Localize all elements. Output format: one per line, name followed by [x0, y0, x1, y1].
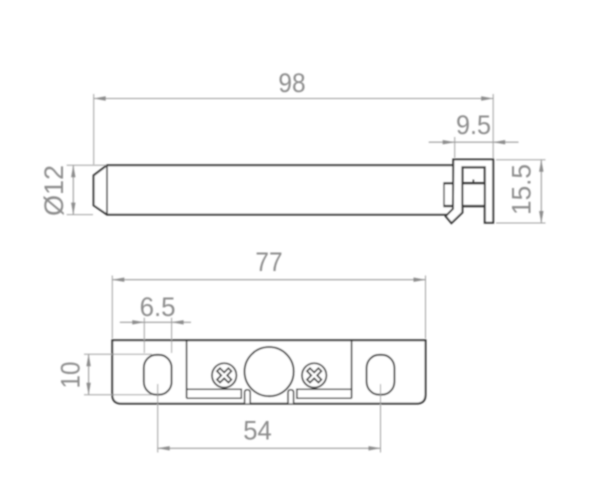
svg-text:54: 54	[243, 415, 272, 445]
svg-text:98: 98	[278, 68, 305, 98]
svg-text:9.5: 9.5	[456, 110, 491, 140]
svg-text:15.5: 15.5	[507, 164, 537, 215]
svg-text:10: 10	[56, 362, 86, 389]
svg-text:Ø12: Ø12	[39, 165, 69, 216]
svg-text:6.5: 6.5	[140, 292, 176, 322]
svg-text:77: 77	[255, 247, 282, 277]
